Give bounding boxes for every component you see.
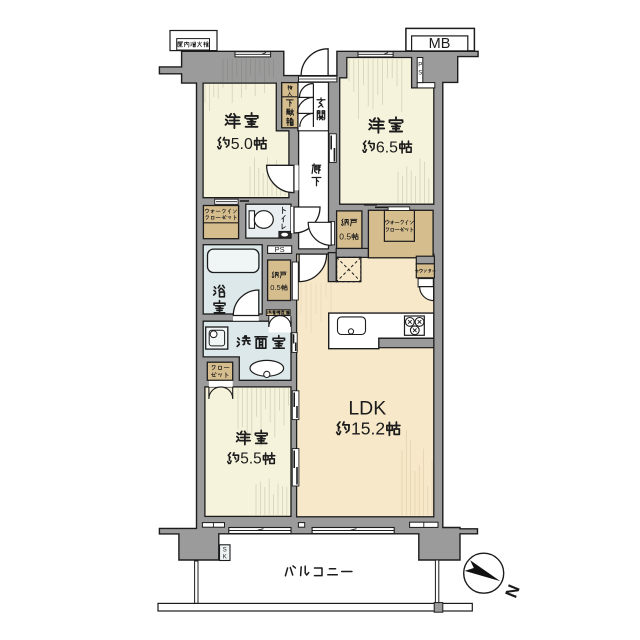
- svg-text:P: P: [418, 63, 422, 69]
- svg-text:5.5: 5.5: [240, 451, 261, 468]
- svg-text:0.5: 0.5: [270, 283, 281, 292]
- svg-text:15.2: 15.2: [351, 419, 385, 439]
- svg-text:5.0: 5.0: [231, 136, 253, 153]
- svg-text:MB: MB: [429, 36, 451, 52]
- svg-text:S: S: [223, 548, 227, 554]
- svg-text:0.5: 0.5: [339, 231, 351, 241]
- svg-text:LDK: LDK: [348, 398, 386, 420]
- svg-text:PS: PS: [275, 245, 285, 254]
- svg-text:6.5: 6.5: [376, 139, 398, 156]
- svg-text:S: S: [418, 71, 422, 77]
- svg-text:K: K: [223, 555, 227, 561]
